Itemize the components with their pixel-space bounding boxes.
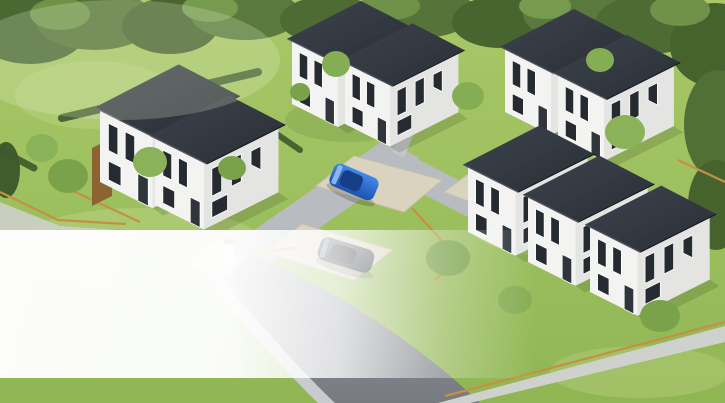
promo-slide: BYDLETE VE VLASTNÍM KOUSEK ZA PRAHOU	[0, 0, 725, 403]
promo-banner: BYDLETE VE VLASTNÍM KOUSEK ZA PRAHOU	[0, 230, 725, 378]
